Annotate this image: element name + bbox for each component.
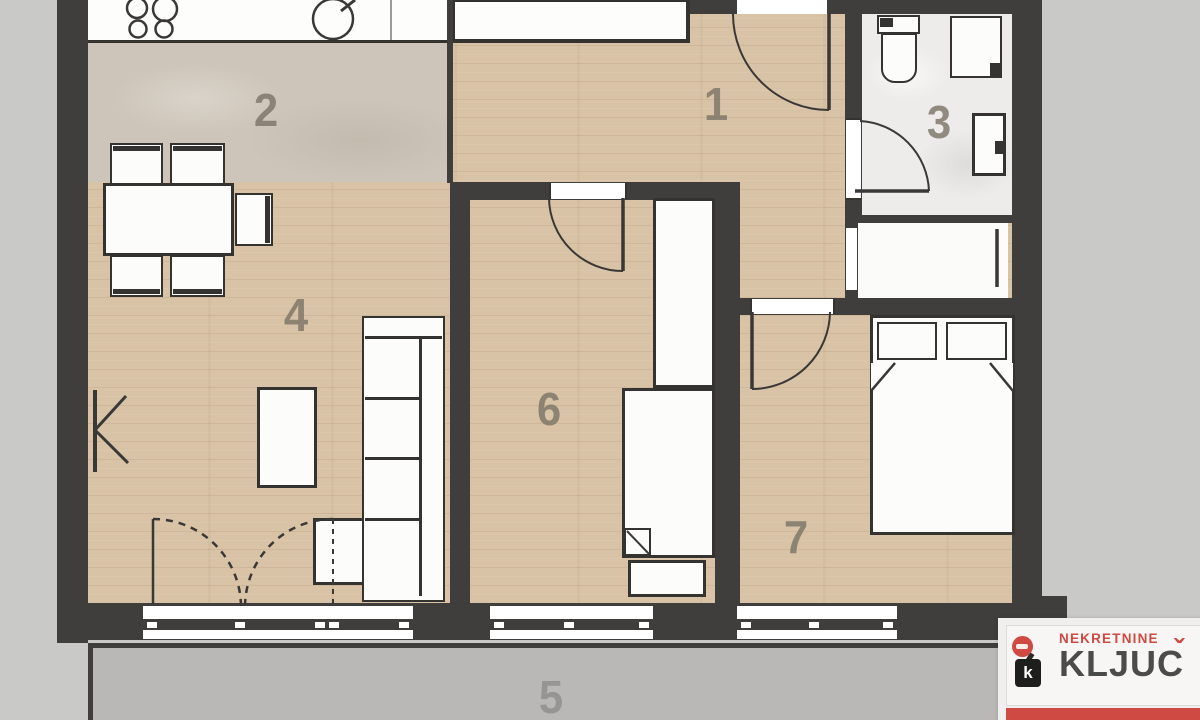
bathroom-sink [972, 113, 1006, 176]
window-tick [809, 622, 819, 628]
watermark-red-bar [1006, 708, 1200, 720]
sofa [362, 316, 445, 602]
wall-living-room6 [450, 182, 470, 603]
closet-door-opening [846, 228, 857, 290]
wall-right [1012, 0, 1042, 640]
wall-left [57, 0, 88, 643]
dining-chair [170, 143, 225, 187]
wardrobe-room6 [653, 198, 715, 388]
toilet-flush-mark [880, 18, 893, 27]
window-tick [329, 622, 339, 628]
closet-floor [858, 222, 1008, 298]
entrance-door-opening [733, 0, 831, 14]
wall-bathroom-bottom [845, 215, 1012, 223]
key-badge: k [1015, 659, 1041, 687]
caron-mark: ˇ [1174, 634, 1185, 668]
entrance-jamb-left [733, 0, 737, 14]
pillow-room7 [877, 322, 937, 360]
pillow-room6 [624, 528, 651, 556]
floor-plan: 1 2 3 4 5 6 7 k NEKRETNINE KLJUCˇ [0, 0, 1200, 720]
bathroom-door-opening [846, 118, 861, 200]
watermark-text: NEKRETNINE KLJUCˇ [1059, 632, 1184, 681]
pillow-room7 [946, 322, 1007, 360]
wall-top-left-of-entrance [690, 0, 733, 14]
dining-chair [235, 193, 273, 246]
window-frame-bar [143, 619, 413, 630]
room-label-2: 2 [254, 83, 278, 137]
watermark-card: k NEKRETNINE KLJUCˇ [998, 618, 1200, 720]
dining-chair [110, 143, 163, 187]
room-label-5: 5 [539, 670, 563, 720]
window-tick [639, 622, 649, 628]
sofa-cushion-line [365, 397, 419, 400]
wall-room6-room7 [715, 182, 740, 603]
room7-door-opening [750, 299, 835, 314]
window-tick [883, 622, 893, 628]
hallway-cabinet [453, 0, 690, 43]
toilet-bowl [881, 33, 917, 83]
terrace [88, 643, 1062, 720]
dining-chair [170, 255, 225, 297]
room6-door-opening [549, 183, 627, 199]
entrance-jamb-right [827, 0, 831, 14]
sofa-backrest-line [419, 336, 422, 596]
room-label-4: 4 [284, 288, 308, 342]
sofa-armrest-line [365, 336, 442, 339]
room-label-3: 3 [927, 95, 951, 149]
sofa-cushion-line [365, 457, 419, 460]
window-tick [315, 622, 325, 628]
window-tick [494, 622, 504, 628]
sofa-chaise [313, 518, 368, 585]
room-label-1: 1 [704, 77, 728, 131]
window-living-room [143, 606, 413, 639]
dining-chair [110, 255, 163, 297]
window-tick [741, 622, 751, 628]
window-room6 [490, 606, 653, 639]
window-room7 [737, 606, 897, 639]
key-head-circle [1012, 636, 1033, 657]
kitchen-counter [88, 0, 447, 43]
brand-name-bottom: KLJUCˇ [1059, 647, 1184, 681]
window-tick [147, 622, 157, 628]
room-label-7: 7 [784, 510, 808, 564]
washing-machine [950, 16, 1002, 78]
wall-kitchen-divider [447, 0, 453, 183]
sink-tap-mark [995, 141, 1004, 154]
window-tick [399, 622, 409, 628]
washer-door-mark [990, 63, 1001, 77]
watermark-inner-panel: k NEKRETNINE KLJUCˇ [1006, 625, 1200, 706]
toilet-tank [877, 15, 920, 34]
nightstand-room6 [628, 560, 706, 597]
window-tick [564, 622, 574, 628]
dining-table [103, 183, 234, 256]
room-label-6: 6 [537, 382, 561, 436]
key-logo-icon: k [1012, 636, 1056, 698]
sofa-cushion-line [365, 518, 419, 521]
window-tick [235, 622, 245, 628]
coffee-table [257, 387, 317, 488]
